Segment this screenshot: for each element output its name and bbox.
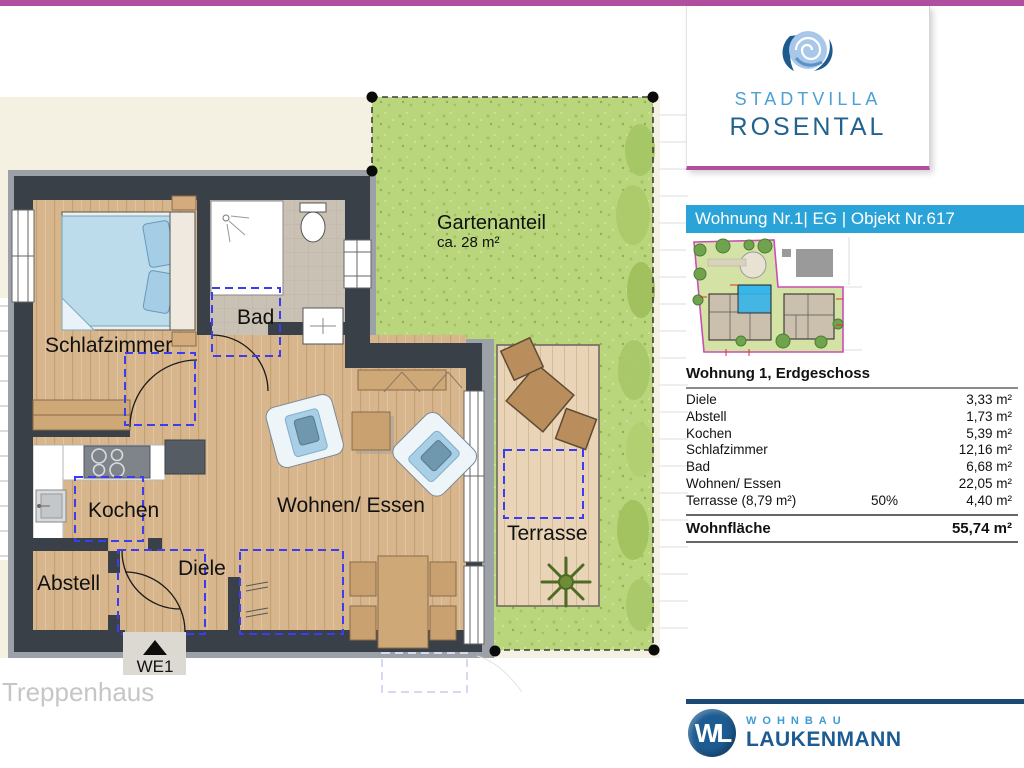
kitchen-sink <box>36 490 66 522</box>
bed <box>62 212 195 330</box>
row-name: Terrasse (8,79 m²) <box>686 493 871 510</box>
row-name: Abstell <box>686 409 871 426</box>
label-wohnen: Wohnen/ Essen <box>277 494 425 517</box>
row-pct <box>871 476 911 493</box>
sideboard <box>358 370 462 392</box>
row-pct <box>871 409 911 426</box>
rose-icon <box>776 20 840 82</box>
row-pct <box>871 392 911 409</box>
entrance-label: WE1 <box>137 657 174 676</box>
row-pct <box>871 442 911 459</box>
brand-line1: WOHNBAU <box>746 715 902 727</box>
logo-line2: ROSENTAL <box>687 113 929 142</box>
row-value: 22,05 m² <box>911 476 1018 493</box>
siteplan-right-building <box>784 294 834 339</box>
nightstand-top <box>172 196 196 210</box>
row-name: Schlafzimmer <box>686 442 871 459</box>
area-table-rows: Diele 3,33 m² Abstell 1,73 m² Kochen 5,3… <box>686 389 1018 510</box>
row-pct: 50% <box>871 493 911 510</box>
footer-accent-bar <box>686 699 1024 704</box>
brand-line2: LAUKENMANN <box>746 728 902 752</box>
row-value: 12,16 m² <box>911 442 1018 459</box>
toilet <box>300 203 326 242</box>
company-brand: WL WOHNBAU LAUKENMANN <box>688 709 902 757</box>
row-name: Kochen <box>686 426 871 443</box>
table-row: Abstell 1,73 m² <box>686 409 1018 426</box>
table-row: Bad 6,68 m² <box>686 459 1018 476</box>
row-pct <box>871 426 911 443</box>
project-logo-card: STADTVILLA ROSENTAL <box>686 6 930 170</box>
row-name: Diele <box>686 392 871 409</box>
label-garten-area: ca. 28 m² <box>437 234 500 251</box>
entrance-marker: WE1 <box>123 632 186 676</box>
table-row: Terrasse (8,79 m²) 50% 4,40 m² <box>686 493 1018 510</box>
siteplan-building-gray <box>796 249 833 277</box>
row-value: 4,40 m² <box>911 493 1018 510</box>
terrace <box>497 338 599 606</box>
table-row: Diele 3,33 m² <box>686 392 1018 409</box>
washbasin <box>303 308 343 344</box>
window-living-east-1 <box>464 391 484 562</box>
nightstand-bottom <box>172 332 196 346</box>
floorplan: WE1 Schlafzimmer Bad Kochen Abstell Diel… <box>0 0 690 768</box>
siteplan-thumbnail <box>686 237 862 359</box>
total-name: Wohnfläche <box>686 520 952 537</box>
total-value: 55,74 m² <box>952 520 1018 537</box>
window-bath-east <box>344 240 371 288</box>
terrace-plant <box>542 558 590 606</box>
table-row: Wohnen/ Essen 22,05 m² <box>686 476 1018 493</box>
window-living-east-2 <box>464 566 484 644</box>
table-row: Kochen 5,39 m² <box>686 426 1018 443</box>
label-garten: Gartenanteil <box>437 212 546 234</box>
label-terrasse: Terrasse <box>507 522 588 545</box>
unit-header: Wohnung Nr.1| EG | Objekt Nr.617 <box>686 205 1024 233</box>
label-treppenhaus: Treppenhaus <box>2 677 154 707</box>
logo-line1: STADTVILLA <box>687 89 929 110</box>
wl-monogram-icon: WL <box>688 709 736 757</box>
row-value: 1,73 m² <box>911 409 1018 426</box>
label-bad: Bad <box>237 306 274 329</box>
page: WE1 Schlafzimmer Bad Kochen Abstell Diel… <box>0 0 1024 768</box>
window-bedroom-west <box>12 210 34 302</box>
row-value: 6,68 m² <box>911 459 1018 476</box>
kitchen-tall-unit <box>165 440 205 474</box>
table-total-row: Wohnfläche 55,74 m² <box>686 514 1018 543</box>
row-pct <box>871 459 911 476</box>
area-table: Wohnung 1, Erdgeschoss Diele 3,33 m² Abs… <box>686 365 1018 543</box>
label-kochen: Kochen <box>88 499 159 522</box>
row-name: Bad <box>686 459 871 476</box>
label-abstell: Abstell <box>37 572 100 595</box>
coffee-table <box>352 412 394 454</box>
row-value: 5,39 m² <box>911 426 1018 443</box>
stove <box>84 446 150 478</box>
row-value: 3,33 m² <box>911 392 1018 409</box>
shower <box>211 201 283 295</box>
label-schlafzimmer: Schlafzimmer <box>45 334 172 357</box>
area-table-title: Wohnung 1, Erdgeschoss <box>686 365 1018 389</box>
row-name: Wohnen/ Essen <box>686 476 871 493</box>
label-diele: Diele <box>178 557 226 580</box>
table-row: Schlafzimmer 12,16 m² <box>686 442 1018 459</box>
